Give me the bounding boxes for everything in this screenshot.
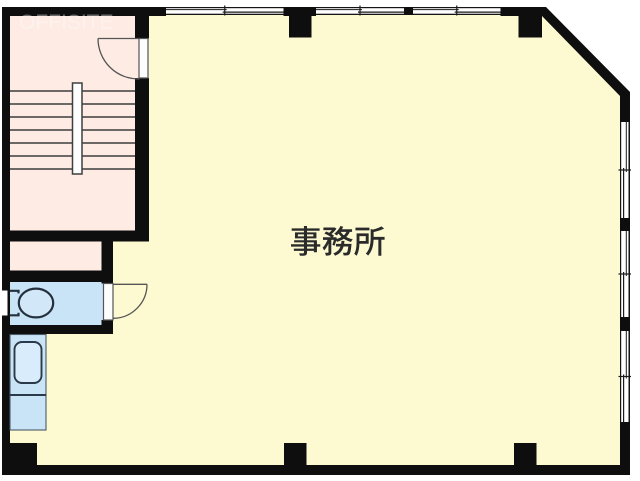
svg-text:OFFISITE: OFFISITE: [19, 11, 114, 34]
